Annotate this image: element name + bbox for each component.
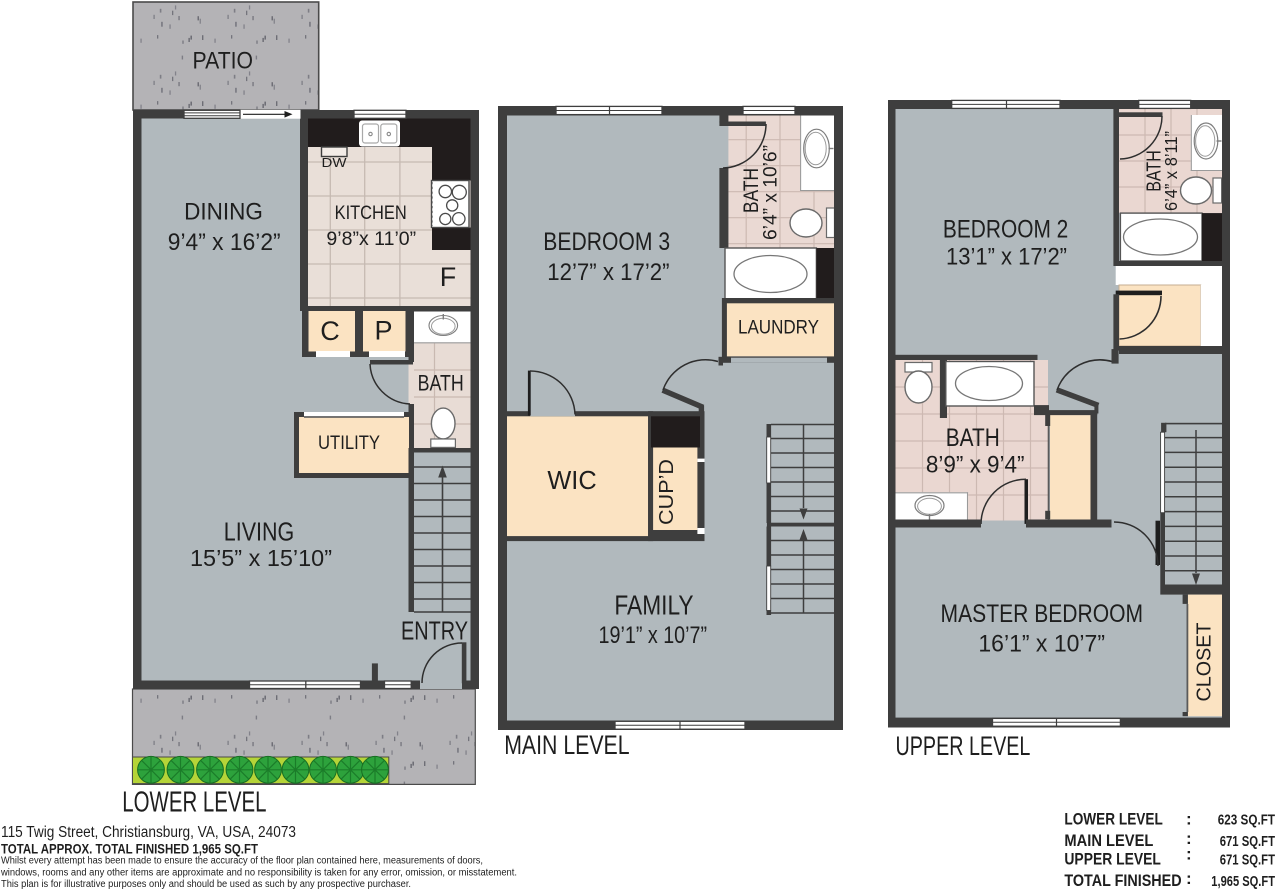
svg-text:F: F — [440, 262, 457, 292]
svg-text:LOWER LEVEL: LOWER LEVEL — [122, 787, 266, 819]
svg-text:TOTAL APPROX. TOTAL FINISHED 1: TOTAL APPROX. TOTAL FINISHED 1,965 SQ.FT — [1, 841, 258, 857]
svg-text:C: C — [320, 316, 340, 346]
svg-text:windows, rooms and any other i: windows, rooms and any other items are a… — [0, 868, 517, 879]
svg-text:FAMILY: FAMILY — [614, 590, 693, 621]
svg-text:DW: DW — [322, 156, 347, 170]
svg-text::: : — [1186, 869, 1192, 888]
svg-text:MASTER BEDROOM: MASTER BEDROOM — [941, 600, 1144, 628]
svg-text:1,965 SQ.FT: 1,965 SQ.FT — [1211, 874, 1275, 890]
svg-text:CLOSET: CLOSET — [1194, 623, 1216, 702]
svg-text:MAIN LEVEL: MAIN LEVEL — [504, 730, 629, 760]
svg-text:12’7” x 17’2”: 12’7” x 17’2” — [547, 259, 669, 286]
svg-text:115 Twig Street, Christiansbur: 115 Twig Street, Christiansburg, VA, USA… — [1, 824, 296, 841]
svg-text:DINING: DINING — [184, 199, 263, 226]
svg-text:LIVING: LIVING — [224, 517, 294, 547]
svg-text:WIC: WIC — [547, 465, 596, 495]
svg-text:623 SQ.FT: 623 SQ.FT — [1218, 812, 1275, 828]
svg-text:LOWER LEVEL: LOWER LEVEL — [1064, 809, 1162, 828]
svg-text:BATH: BATH — [946, 424, 1000, 452]
svg-text::: : — [1186, 809, 1192, 828]
svg-text:UPPER LEVEL: UPPER LEVEL — [896, 731, 1031, 761]
svg-text:15’5” x 15’10”: 15’5” x 15’10” — [190, 545, 332, 571]
svg-text:671 SQ.FT: 671 SQ.FT — [1220, 834, 1275, 850]
svg-text:BEDROOM 3: BEDROOM 3 — [543, 228, 670, 256]
svg-text:13’1” x 17’2”: 13’1” x 17’2” — [946, 244, 1067, 271]
svg-text::: : — [1186, 845, 1192, 864]
svg-text:BATH: BATH — [739, 168, 763, 213]
svg-text:6’4” x 8’11”: 6’4” x 8’11” — [1161, 131, 1181, 211]
svg-text:8’9” x 9’4”: 8’9” x 9’4” — [926, 452, 1025, 479]
svg-text:P: P — [374, 316, 392, 346]
svg-text:BEDROOM 2: BEDROOM 2 — [943, 216, 1068, 244]
svg-text:9’8”x 11’0”: 9’8”x 11’0” — [326, 228, 416, 250]
svg-text:CUP’D: CUP’D — [656, 459, 678, 525]
svg-text:ENTRY: ENTRY — [401, 615, 468, 645]
svg-text:PATIO: PATIO — [193, 48, 254, 75]
svg-text:MAIN LEVEL: MAIN LEVEL — [1064, 831, 1153, 850]
svg-text:Whilst every attempt has been: Whilst every attempt has been made to en… — [1, 856, 483, 867]
svg-text:TOTAL FINISHED: TOTAL FINISHED — [1064, 871, 1181, 890]
svg-text:LAUNDRY: LAUNDRY — [738, 317, 819, 339]
svg-text:671 SQ.FT: 671 SQ.FT — [1220, 853, 1275, 869]
svg-text:BATH: BATH — [418, 371, 464, 396]
svg-text:19’1” x 10’7”: 19’1” x 10’7” — [599, 622, 708, 649]
svg-text:16’1” x 10’7”: 16’1” x 10’7” — [978, 631, 1105, 658]
svg-text:6’4” x 10’6”: 6’4” x 10’6” — [761, 145, 782, 240]
svg-text:UPPER LEVEL: UPPER LEVEL — [1064, 850, 1161, 869]
svg-text:KITCHEN: KITCHEN — [335, 203, 407, 224]
svg-text:9’4” x 16’2”: 9’4” x 16’2” — [168, 229, 281, 256]
svg-text:This plan is for illustrative: This plan is for illustrative purposes o… — [1, 879, 411, 890]
svg-text:UTILITY: UTILITY — [318, 432, 380, 454]
